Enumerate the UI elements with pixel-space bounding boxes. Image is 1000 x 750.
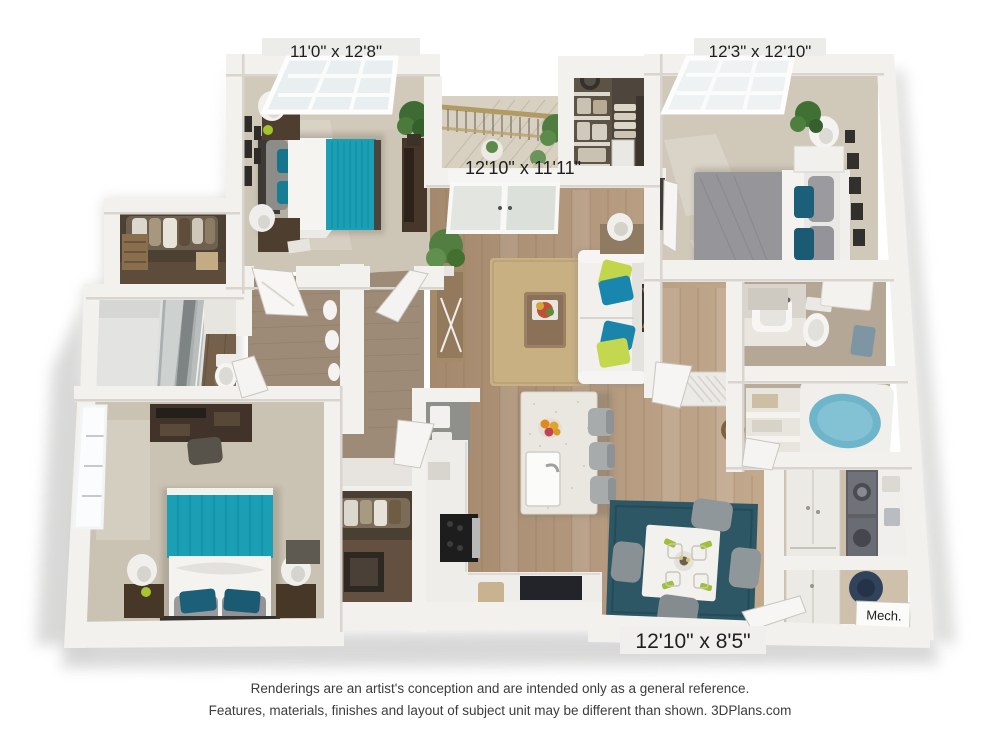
svg-text:12'10" x 11'11": 12'10" x 11'11"	[465, 158, 581, 178]
svg-text:12'3" x 12'10": 12'3" x 12'10"	[709, 42, 812, 61]
svg-text:Features, materials, finishes: Features, materials, finishes and layout…	[209, 703, 792, 718]
svg-text:12'10" x 8'5": 12'10" x 8'5"	[635, 630, 750, 653]
svg-text:11'0" x 12'8": 11'0" x 12'8"	[290, 42, 382, 61]
svg-text:Mech.: Mech.	[866, 607, 902, 623]
svg-text:Renderings are an artist's con: Renderings are an artist's conception an…	[251, 681, 750, 696]
